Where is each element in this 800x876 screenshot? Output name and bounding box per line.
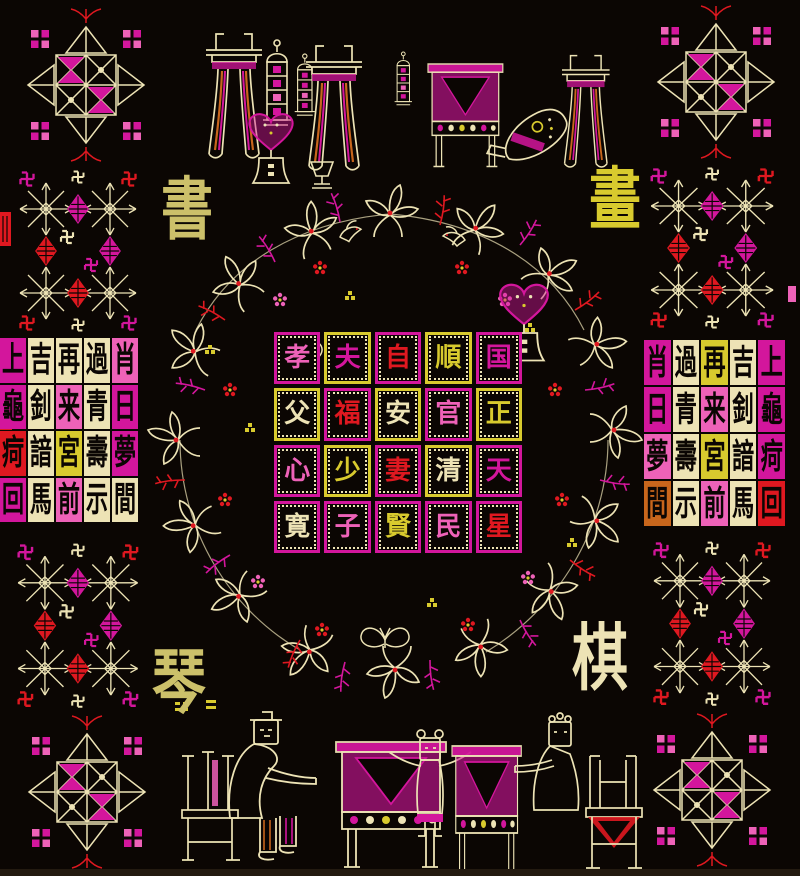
seal-character: 上	[2, 343, 24, 377]
cell-inner-frame: 少	[328, 449, 366, 493]
proverb-cell: 寛	[274, 501, 320, 553]
snowflake-panel-lower-right	[654, 543, 770, 705]
seal-character: 再	[703, 345, 725, 379]
cell-inner-frame: 父	[278, 392, 316, 436]
seal-character: 肖	[646, 345, 668, 379]
seal-block: 前	[701, 481, 728, 526]
seal-block: 馬	[730, 481, 757, 526]
proverb-cell: 少	[324, 445, 370, 497]
seal-block: 日	[644, 387, 671, 432]
proverb-cell: 妻	[375, 445, 421, 497]
seal-block: 宮	[56, 431, 82, 476]
cell-inner-frame: 福	[328, 392, 366, 436]
seal-character: 過	[86, 343, 108, 377]
cell-inner-frame: 賢	[379, 505, 417, 549]
seal-block: 龜	[758, 387, 785, 432]
proverb-cell: 官	[425, 388, 471, 440]
cell-inner-frame: 夫	[328, 336, 366, 380]
proverb-character: 賢	[385, 514, 411, 540]
seal-character: 疴	[2, 436, 24, 470]
seal-character: 釗	[732, 392, 754, 426]
candlestick-icon	[395, 52, 412, 105]
proverb-character: 父	[284, 401, 310, 427]
proverb-cell: 福	[324, 388, 370, 440]
proverb-cell: 孝	[274, 332, 320, 384]
censer-column-icon	[263, 40, 291, 125]
proverb-cell: 夫	[324, 332, 370, 384]
proverb-character: 安	[385, 401, 411, 427]
seal-character: 宮	[703, 439, 725, 473]
proverb-character: 官	[435, 401, 461, 427]
seal-block: 夢	[112, 431, 138, 476]
seal-block: 夢	[644, 434, 671, 479]
seal-character: 来	[703, 392, 725, 426]
seal-character: 再	[58, 343, 80, 377]
seal-character: 過	[675, 345, 697, 379]
seal-block: 龜	[0, 385, 26, 430]
cell-inner-frame: 清	[429, 449, 467, 493]
seal-block: 間	[644, 481, 671, 526]
bird-icon	[443, 227, 465, 246]
seal-block: 疴	[0, 431, 26, 476]
right-seal-panel: 肖過再吉上日青来釗龜夢壽宮諳疴間示前馬回	[644, 340, 785, 526]
banquet-scene	[175, 700, 642, 871]
seal-block: 諳	[730, 434, 757, 479]
proverb-cell: 星	[476, 501, 522, 553]
seal-block: 青	[673, 387, 700, 432]
butterfly-icon	[361, 628, 409, 648]
seal-block: 肖	[644, 340, 671, 385]
calligraphy-shu: 書	[161, 186, 213, 238]
seal-block: 示	[673, 481, 700, 526]
chair-icon	[182, 752, 240, 860]
cell-inner-frame: 順	[429, 336, 467, 380]
proverb-character: 正	[486, 401, 512, 427]
cell-inner-frame: 国	[480, 336, 518, 380]
seal-block: 壽	[84, 431, 110, 476]
bird-icon	[338, 220, 363, 243]
left-seal-panel: 上吉再過肖龜釗来青日疴諳宮壽夢回馬前示間	[0, 338, 138, 522]
seal-block: 青	[84, 385, 110, 430]
cell-inner-frame: 寛	[278, 505, 316, 549]
proverb-character: 民	[435, 514, 461, 540]
offering-table-icon	[562, 56, 610, 167]
seal-block: 日	[112, 385, 138, 430]
seal-character: 回	[761, 486, 783, 520]
proverb-character: 清	[435, 458, 461, 484]
seated-elder-figure	[229, 712, 316, 860]
seal-character: 前	[58, 483, 80, 517]
cell-inner-frame: 自	[379, 336, 417, 380]
proverb-cell: 子	[324, 501, 370, 553]
proverb-character: 寛	[284, 514, 310, 540]
cell-inner-frame: 妻	[379, 449, 417, 493]
banquet-table-icon	[452, 746, 521, 871]
seal-block: 壽	[673, 434, 700, 479]
seal-block: 来	[56, 385, 82, 430]
seal-block: 示	[84, 478, 110, 523]
seal-character: 馬	[30, 483, 52, 517]
proverb-character: 福	[335, 401, 361, 427]
proverb-character: 子	[335, 514, 361, 540]
seal-character: 青	[86, 390, 108, 424]
seal-block: 馬	[28, 478, 54, 523]
seal-block: 釗	[730, 387, 757, 432]
proverb-cell: 正	[476, 388, 522, 440]
center-proverb-grid: 孝 夫 自 順 国 父 福	[274, 332, 522, 553]
seal-character: 釗	[30, 390, 52, 424]
draped-table-icon	[428, 64, 503, 167]
proverb-cell: 天	[476, 445, 522, 497]
proverb-cell: 安	[375, 388, 421, 440]
seal-character: 前	[703, 486, 725, 520]
heart-vase-icon	[249, 114, 292, 183]
seal-block: 吉	[28, 338, 54, 383]
seal-block: 諳	[28, 431, 54, 476]
seal-character: 吉	[732, 345, 754, 379]
seal-character: 夢	[646, 439, 668, 473]
seal-block: 回	[758, 481, 785, 526]
seal-character: 壽	[86, 436, 108, 470]
cell-inner-frame: 天	[480, 449, 518, 493]
proverb-cell: 父	[274, 388, 320, 440]
proverb-cell: 賢	[375, 501, 421, 553]
corner-star-top-left	[28, 9, 144, 161]
seal-block: 間	[112, 478, 138, 523]
cell-inner-frame: 孝	[278, 336, 316, 380]
offering-table-icon	[206, 34, 262, 158]
seal-character: 龜	[2, 390, 24, 424]
proverb-character: 妻	[385, 458, 411, 484]
seal-character: 夢	[114, 436, 136, 470]
seal-character: 肖	[114, 343, 136, 377]
proverb-cell: 国	[476, 332, 522, 384]
seal-block: 過	[84, 338, 110, 383]
seal-character: 馬	[732, 486, 754, 520]
chair-with-drape	[586, 756, 642, 868]
seal-block: 肖	[112, 338, 138, 383]
seal-character: 諳	[30, 436, 52, 470]
seal-block: 再	[56, 338, 82, 383]
seal-character: 上	[761, 345, 783, 379]
seal-block: 宮	[701, 434, 728, 479]
seal-character: 間	[114, 483, 136, 517]
seal-block: 回	[0, 478, 26, 523]
seal-block: 上	[758, 340, 785, 385]
seal-character: 宮	[58, 436, 80, 470]
proverb-character: 天	[486, 458, 512, 484]
seal-block: 前	[56, 478, 82, 523]
proverb-cell: 順	[425, 332, 471, 384]
proverb-cell: 清	[425, 445, 471, 497]
censer-column-icon	[295, 54, 315, 115]
seated-lady-figure	[515, 713, 579, 810]
proverb-cell: 心	[274, 445, 320, 497]
snowflake-panel-upper-right	[651, 169, 773, 328]
seal-character: 示	[86, 483, 108, 517]
seal-block: 吉	[730, 340, 757, 385]
seal-character: 龜	[761, 392, 783, 426]
cell-inner-frame: 正	[480, 392, 518, 436]
proverb-character: 心	[284, 458, 310, 484]
seal-character: 来	[58, 390, 80, 424]
snowflake-panel-lower-left	[18, 545, 137, 707]
seal-character: 諳	[732, 439, 754, 473]
cell-inner-frame: 民	[429, 505, 467, 549]
calligraphy-hua: 畫	[589, 176, 641, 228]
seal-character: 壽	[675, 439, 697, 473]
corner-star-bottom-right	[654, 714, 770, 866]
seal-character: 日	[114, 390, 136, 424]
proverb-character: 自	[385, 345, 411, 371]
calligraphy-qi: 棋	[572, 632, 628, 688]
seal-character: 吉	[30, 343, 52, 377]
seal-character: 疴	[761, 439, 783, 473]
proverb-character: 星	[486, 514, 512, 540]
snowflake-panel-upper-left	[20, 172, 136, 331]
proverb-character: 順	[435, 345, 461, 371]
proverb-character: 夫	[335, 345, 361, 371]
seal-block: 来	[701, 387, 728, 432]
seal-block: 疴	[758, 434, 785, 479]
seal-character: 示	[675, 486, 697, 520]
proverb-character: 国	[486, 345, 512, 371]
cell-inner-frame: 安	[379, 392, 417, 436]
seal-character: 間	[646, 486, 668, 520]
proverb-character: 孝	[284, 345, 310, 371]
cell-inner-frame: 子	[328, 505, 366, 549]
seal-character: 日	[646, 392, 668, 426]
proverb-character: 少	[335, 458, 361, 484]
corner-star-bottom-left	[29, 716, 145, 868]
corner-star-top-right	[658, 6, 774, 158]
seal-block: 釗	[28, 385, 54, 430]
seal-character: 青	[675, 392, 697, 426]
proverb-cell: 民	[425, 501, 471, 553]
altar-scene	[206, 34, 610, 188]
offering-table-icon	[306, 46, 362, 170]
cell-inner-frame: 星	[480, 505, 518, 549]
seal-character: 回	[2, 483, 24, 517]
seal-block: 上	[0, 338, 26, 383]
cell-inner-frame: 心	[278, 449, 316, 493]
seal-block: 過	[673, 340, 700, 385]
seal-block: 再	[701, 340, 728, 385]
proverb-cell: 自	[375, 332, 421, 384]
cell-inner-frame: 官	[429, 392, 467, 436]
embroidery-sampler: 上吉再過肖龜釗来青日疴諳宮壽夢回馬前示間 肖過再吉上日青来釗龜夢壽宮諳疴間示前馬…	[0, 0, 800, 876]
calligraphy-qin: 琴	[152, 656, 206, 710]
